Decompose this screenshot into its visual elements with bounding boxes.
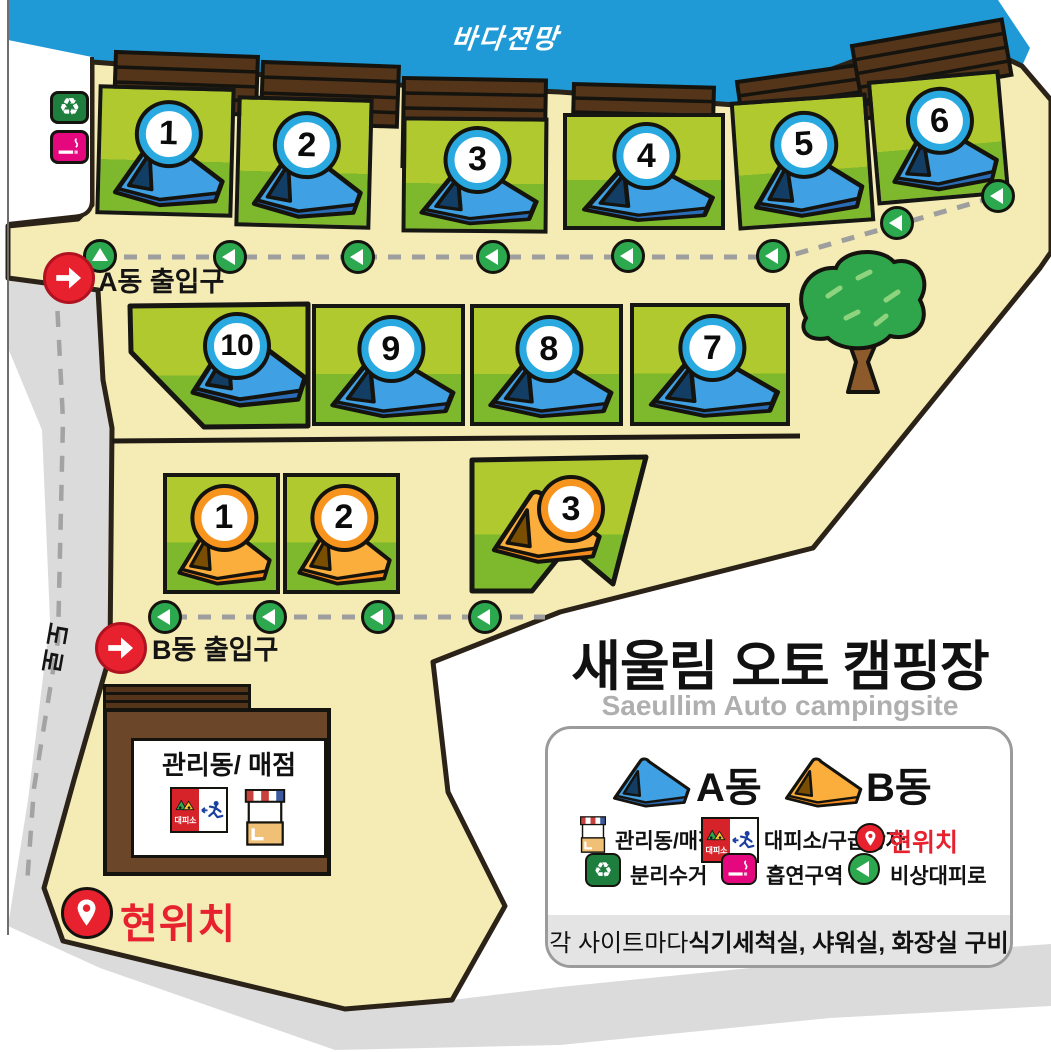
entrance-a-arrow-icon (43, 252, 95, 304)
site-number-badge: 1 (194, 488, 254, 548)
site-a-5: 5 (730, 92, 876, 230)
legend-tent-a-label: A동 (696, 755, 762, 813)
current-location-label: 현위치 (120, 890, 236, 950)
site-a-2: 2 (234, 95, 373, 230)
entrance-a-label: A동 출입구 (98, 260, 224, 299)
building-label: 관리동/ 매점 (162, 745, 296, 782)
site-a-8: 8 (470, 304, 623, 426)
legend-recycle-icon: ♻ (585, 853, 621, 887)
current-location-pin-icon (61, 887, 113, 939)
site-a-7: 7 (630, 303, 790, 426)
site-b-2: 2 (283, 473, 400, 594)
site-number-badge: 3 (541, 479, 601, 539)
sea-view-label: 바다전망 (450, 17, 561, 56)
legend-tent-a-icon (606, 755, 692, 809)
legend-tent-b-icon (778, 755, 864, 809)
legend-note: 각 사이트마다 식기세척실, 샤워실, 화장실 구비 (548, 915, 1010, 965)
site-number-badge: 3 (447, 130, 508, 191)
building-panel: 관리동/ 매점 대피소 (131, 738, 327, 858)
legend-route-icon (848, 853, 880, 885)
site-b-1: 1 (163, 473, 280, 594)
emergency-route-arrow (476, 240, 510, 274)
management-building: 관리동/ 매점 대피소 (103, 708, 331, 876)
legend: A동 B동 관리동/매점 대피소 대피소/구급상자 (545, 726, 1013, 968)
building-roof (103, 684, 251, 712)
site-a-9: 9 (312, 304, 465, 426)
site-number-badge: 2 (314, 488, 374, 548)
emergency-route-arrow (361, 600, 395, 634)
legend-smoking-label: 흡연구역 (766, 860, 843, 890)
campsite-map: 1 2 3 4 5 6 9 8 7 10 1 2 (0, 0, 1051, 1052)
store-kiosk-icon (242, 787, 288, 849)
site-number-badge: 10 (207, 316, 267, 376)
site-number-badge: 4 (616, 126, 676, 186)
legend-store-icon (574, 815, 612, 855)
page-subtitle: Saeullim Auto campingsite (545, 690, 1015, 722)
site-a-4: 4 (563, 113, 725, 230)
emergency-route-arrow (756, 239, 790, 273)
site-a-3: 3 (401, 116, 548, 233)
shelter-sign-icon: 대피소 (170, 787, 228, 833)
legend-route-label: 비상대피로 (890, 860, 987, 890)
legend-recycle-label: 분리수거 (630, 860, 707, 890)
legend-current-label: 현위치 (889, 823, 958, 859)
emergency-route-arrow (981, 179, 1015, 213)
site-a-1: 1 (95, 84, 235, 218)
legend-tent-b-label: B동 (866, 755, 932, 813)
emergency-route-arrow (880, 206, 914, 240)
emergency-route-arrow (341, 240, 375, 274)
site-number-badge: 8 (519, 319, 579, 379)
legend-current-pin-icon (855, 823, 885, 853)
emergency-route-arrow (611, 239, 645, 273)
emergency-route-arrow (468, 600, 502, 634)
smoking-area-icon (50, 130, 89, 164)
entrance-b-label: B동 출입구 (152, 628, 278, 667)
entrance-b-arrow-icon (95, 622, 147, 674)
site-number-badge: 9 (361, 319, 421, 379)
site-number-badge: 7 (682, 318, 742, 378)
legend-smoking-icon (721, 853, 757, 885)
recycle-icon: ♻ (50, 91, 89, 124)
